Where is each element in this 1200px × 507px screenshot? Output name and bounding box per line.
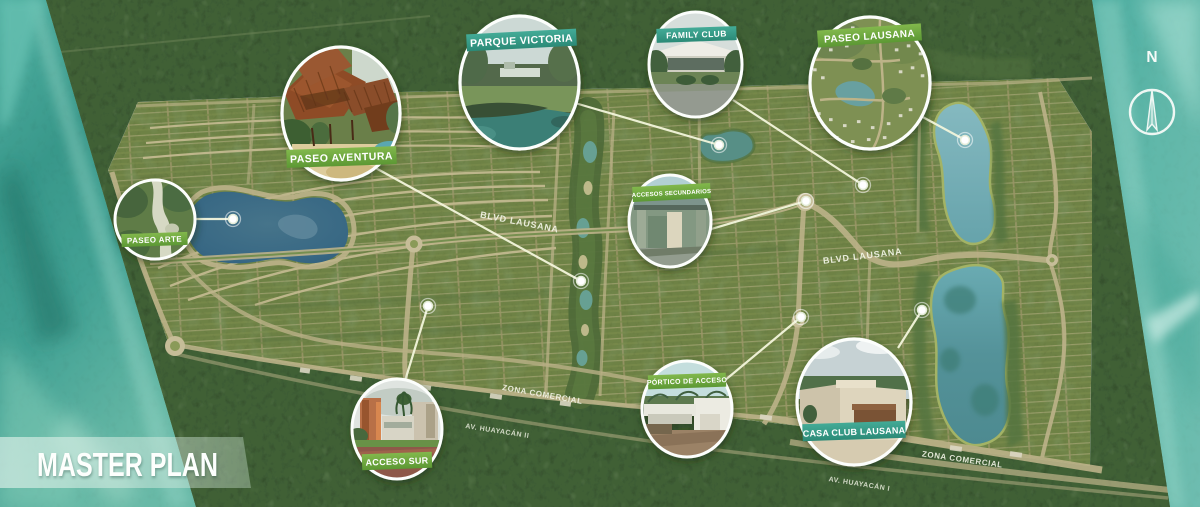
svg-text:FAMILY CLUB: FAMILY CLUB <box>666 28 727 40</box>
svg-text:MASTER PLAN: MASTER PLAN <box>37 446 218 483</box>
svg-text:N: N <box>1146 49 1157 66</box>
